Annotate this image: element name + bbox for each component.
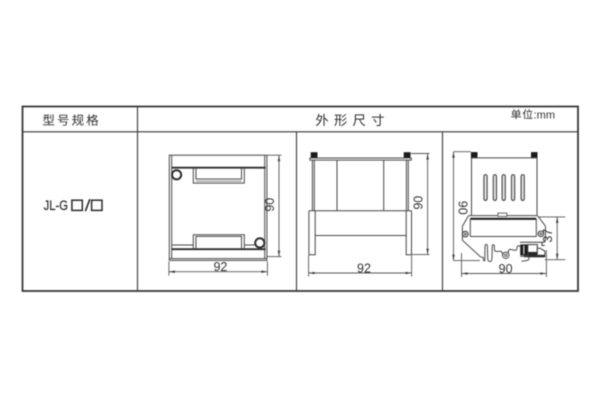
svg-text:90: 90 [411, 196, 425, 210]
svg-text:92: 92 [357, 261, 371, 275]
svg-text:90: 90 [263, 198, 277, 212]
svg-text:37: 37 [541, 229, 555, 243]
svg-text:92: 92 [213, 260, 227, 274]
svg-text::mm: :mm [534, 109, 555, 121]
svg-text:JL-G: JL-G [44, 198, 68, 213]
svg-text:90: 90 [455, 201, 469, 215]
svg-text:90: 90 [499, 262, 513, 276]
